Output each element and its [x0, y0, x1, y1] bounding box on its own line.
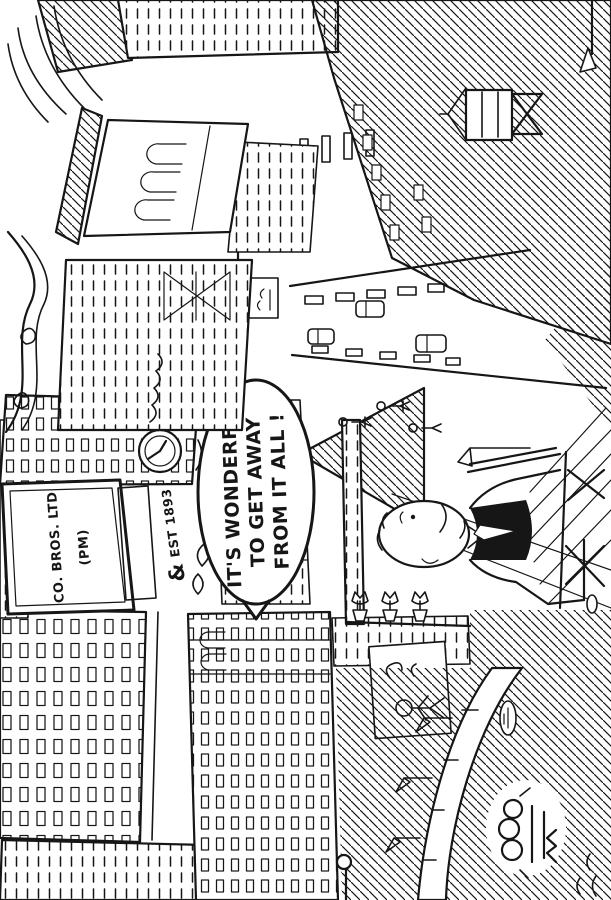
- skyscraper-narrow: [0, 840, 212, 900]
- man-head: [377, 501, 469, 567]
- cartoon-drawing: CO. BROS. LTD (PM) & EST 1893: [0, 0, 611, 900]
- ramp-sign: [500, 701, 516, 735]
- man-eye: [411, 515, 415, 519]
- rotated-canvas: CO. BROS. LTD (PM) & EST 1893: [0, 0, 611, 900]
- cartoon-panel: CO. BROS. LTD (PM) & EST 1893: [0, 0, 611, 900]
- skyscraper-top-slab: [0, 610, 158, 842]
- skyscraper-mid-slab: [188, 612, 338, 900]
- man-shoe: [587, 595, 597, 613]
- clock-icon: [139, 430, 181, 472]
- shop-block: [58, 260, 252, 430]
- billboard-line2: (PM): [76, 529, 93, 566]
